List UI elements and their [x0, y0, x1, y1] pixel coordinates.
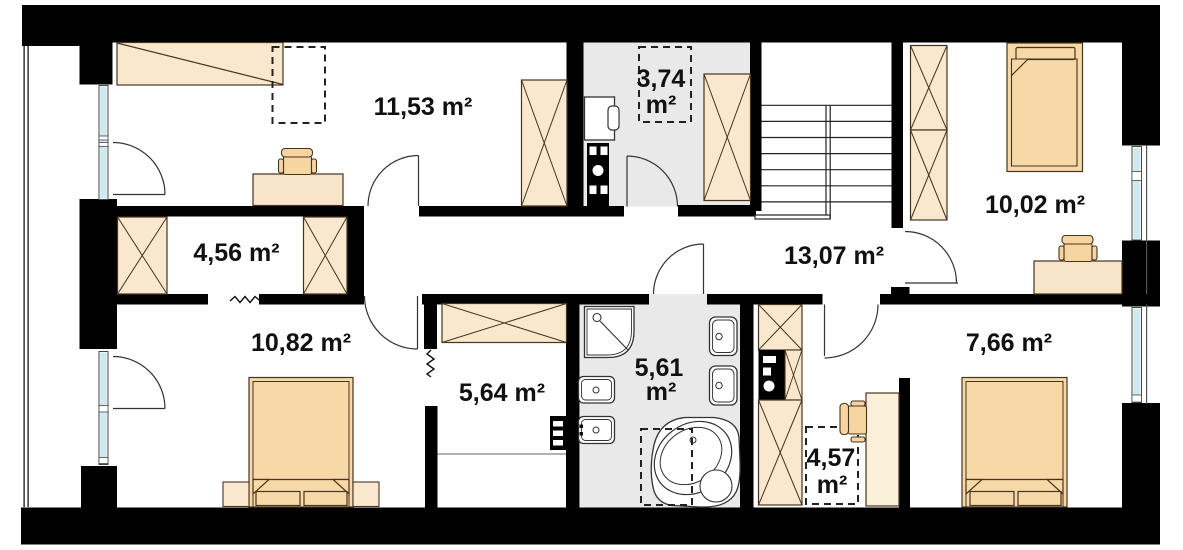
- svg-text:10,02 m²: 10,02 m²: [985, 191, 1085, 219]
- svg-text:11,53 m²: 11,53 m²: [374, 93, 473, 121]
- svg-text:m²: m²: [817, 471, 848, 499]
- svg-text:4,57: 4,57: [807, 444, 856, 472]
- svg-text:10,82 m²: 10,82 m²: [251, 329, 351, 357]
- svg-text:7,66 m²: 7,66 m²: [966, 329, 1052, 357]
- svg-text:3,74: 3,74: [637, 65, 686, 93]
- svg-text:m²: m²: [646, 378, 677, 406]
- svg-text:13,07 m²: 13,07 m²: [784, 242, 884, 270]
- svg-text:4,56 m²: 4,56 m²: [193, 239, 279, 267]
- svg-text:m²: m²: [646, 91, 677, 119]
- svg-text:5,64 m²: 5,64 m²: [459, 379, 545, 407]
